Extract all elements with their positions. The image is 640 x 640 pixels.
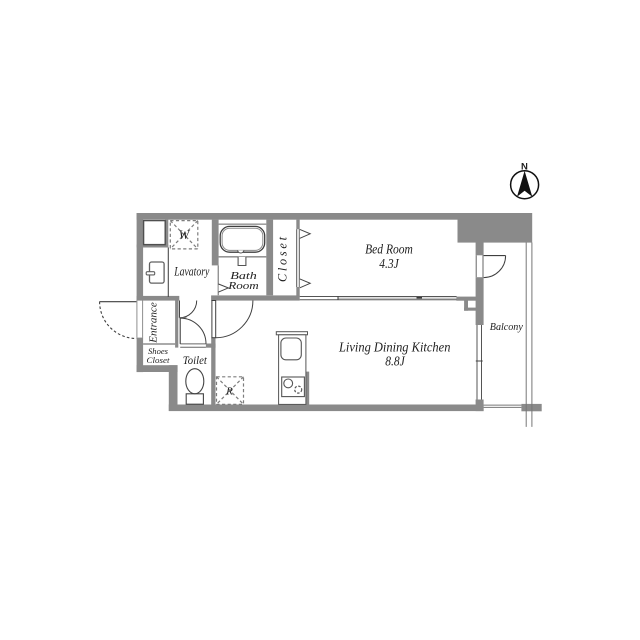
svg-text:Balcony: Balcony xyxy=(490,322,524,333)
svg-text:W: W xyxy=(179,228,191,242)
svg-text:8.8J: 8.8J xyxy=(385,354,405,369)
svg-text:Lavatory: Lavatory xyxy=(173,265,209,279)
svg-text:Room: Room xyxy=(227,281,259,292)
svg-text:Closet: Closet xyxy=(276,236,290,282)
svg-text:4.3J: 4.3J xyxy=(379,256,399,271)
svg-text:N: N xyxy=(521,161,528,172)
svg-text:Toilet: Toilet xyxy=(183,355,208,367)
svg-text:Living Dining Kitchen: Living Dining Kitchen xyxy=(338,339,451,354)
svg-text:R: R xyxy=(225,386,233,398)
svg-text:Entrance: Entrance xyxy=(148,302,160,344)
svg-text:Closet: Closet xyxy=(147,355,171,365)
svg-text:Bed Room: Bed Room xyxy=(365,241,413,256)
